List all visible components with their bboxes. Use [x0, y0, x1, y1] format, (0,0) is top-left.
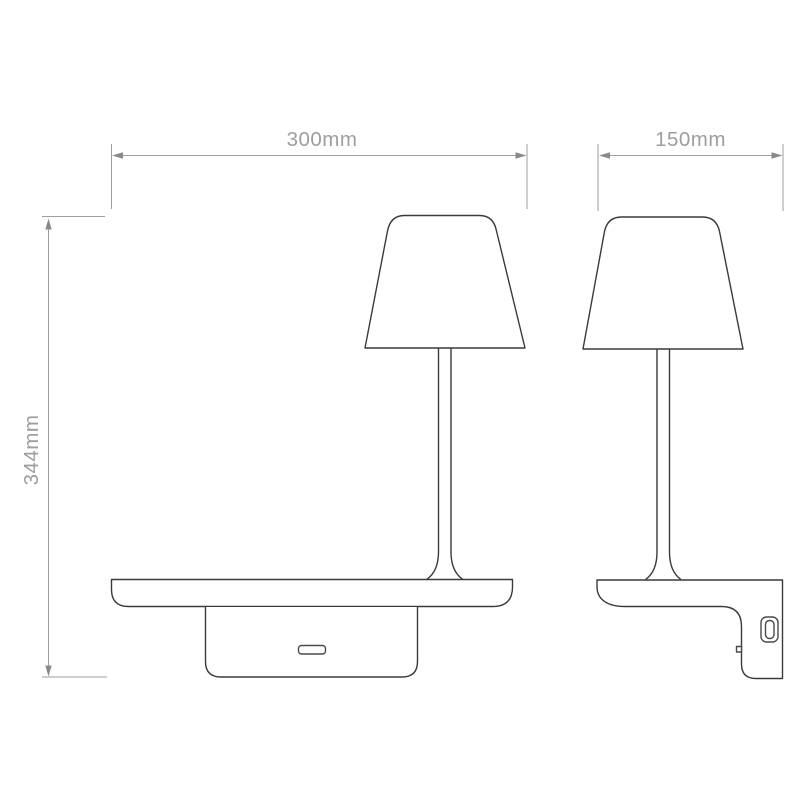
front-usb-box: [206, 607, 418, 677]
front-stem: [427, 349, 463, 579]
width-dimension: 300mm: [112, 128, 528, 209]
front-view: [112, 216, 526, 678]
dimension-arrow-down-icon: [45, 666, 51, 677]
side-usb-port-inner-icon: [766, 621, 775, 639]
side-lampshade: [583, 217, 743, 349]
side-cable-notch-icon: [737, 647, 742, 653]
dimension-arrow-left-icon: [112, 152, 123, 158]
height-dimension: 344mm: [20, 217, 107, 678]
dimension-arrow-up-icon: [45, 219, 51, 230]
depth-dimension-label: 150mm: [655, 128, 726, 151]
dimension-arrow-left-icon: [599, 152, 610, 158]
side-view: [583, 217, 783, 679]
dimension-arrow-right-icon: [516, 152, 527, 158]
front-usb-slot-icon: [299, 646, 326, 655]
dimension-arrow-right-icon: [772, 152, 783, 158]
side-stem: [646, 350, 681, 579]
dimension-drawing: 300mm 150mm 344mm: [0, 0, 800, 800]
front-shelf: [112, 580, 513, 607]
side-bracket: [597, 580, 783, 679]
width-dimension-label: 300mm: [287, 128, 358, 151]
height-dimension-label: 344mm: [20, 415, 43, 486]
depth-dimension: 150mm: [598, 128, 783, 211]
dimension-drawing-canvas: 300mm 150mm 344mm: [0, 0, 800, 800]
front-lampshade: [365, 216, 525, 349]
